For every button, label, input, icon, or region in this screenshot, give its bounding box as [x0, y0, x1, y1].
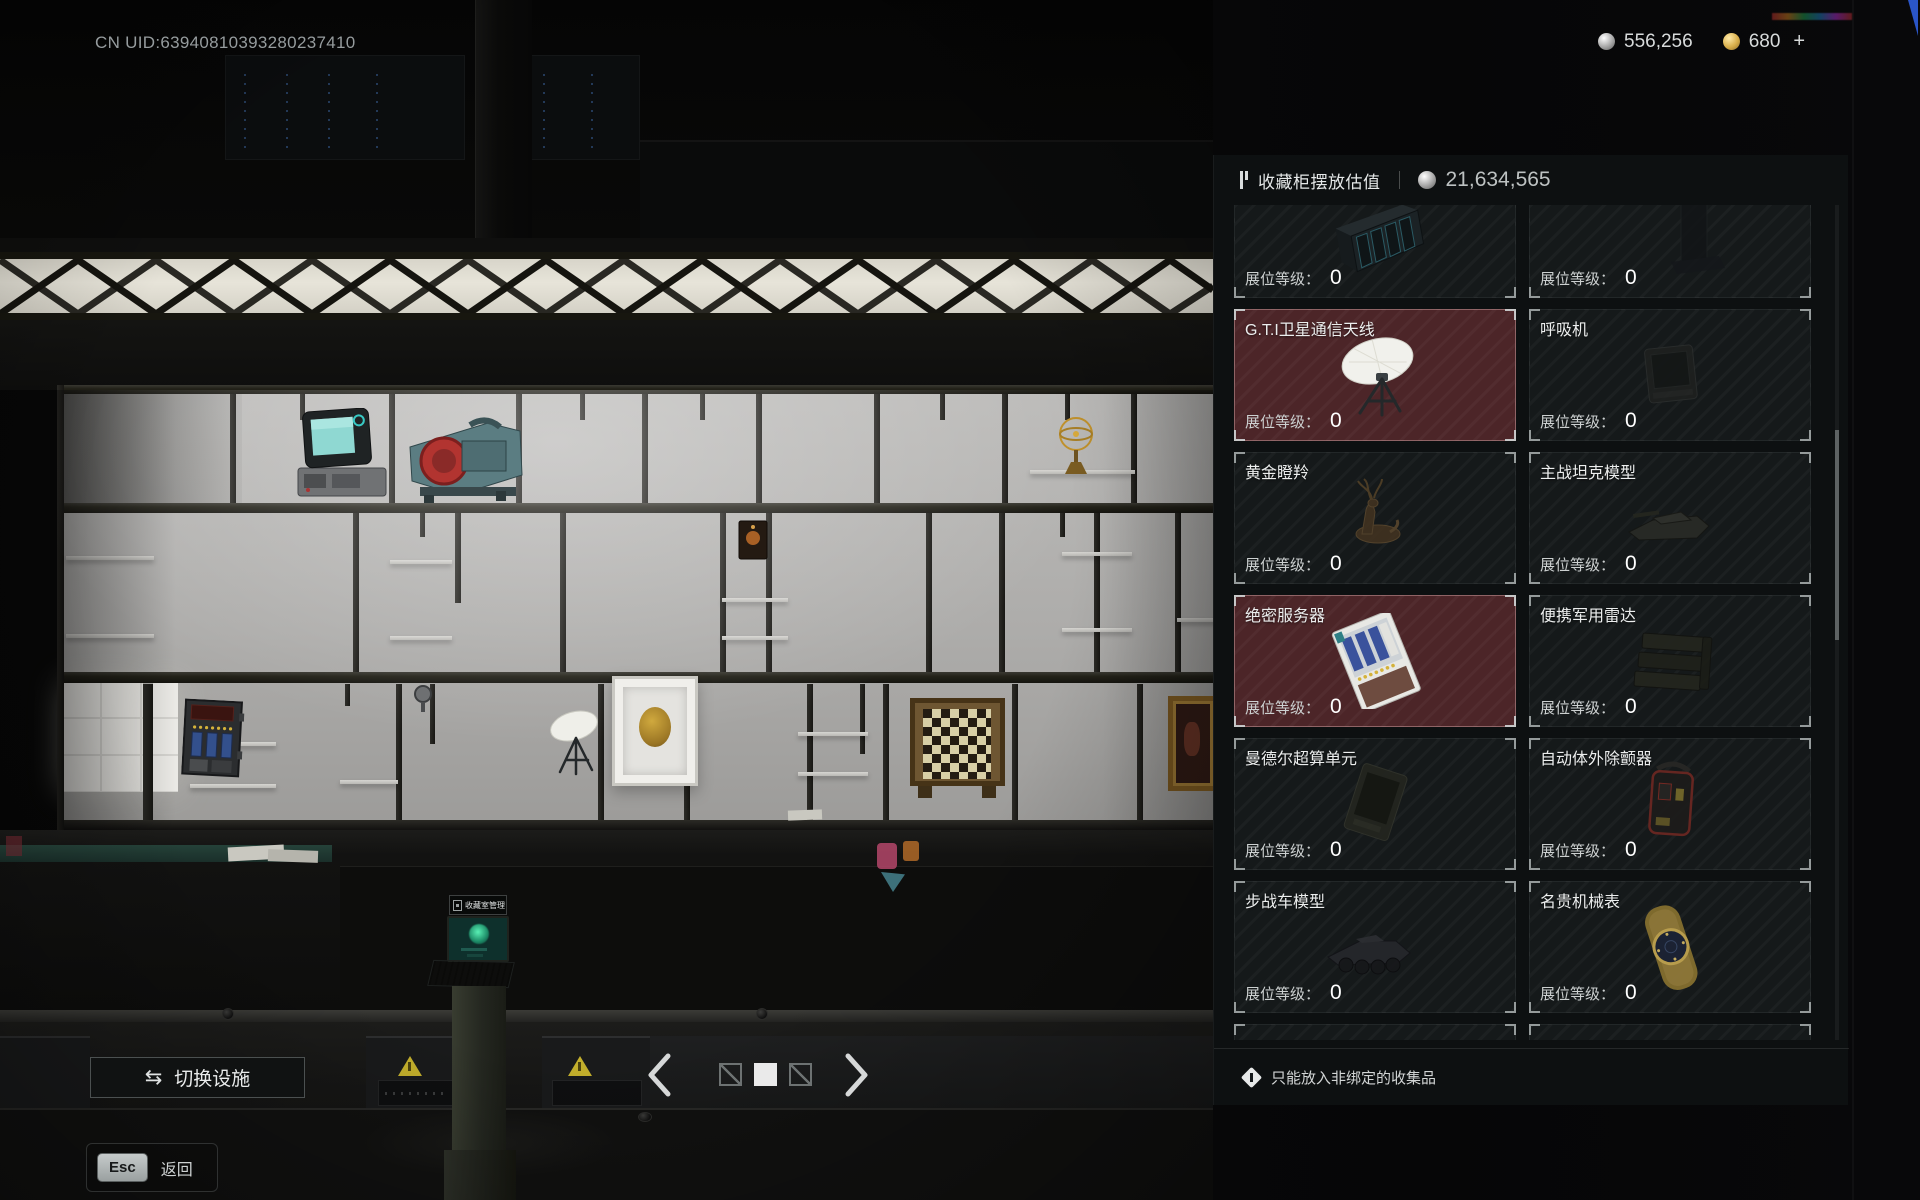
level-label: 展位等级：: [1540, 411, 1615, 432]
painting-figure: [1184, 722, 1200, 756]
collection-item-card[interactable]: 绝密服务器 展位等级： 0: [1234, 595, 1516, 727]
item-name: G.T.I卫星通信天线: [1245, 316, 1375, 340]
level-value: 0: [1330, 981, 1342, 1005]
item-level: 展位等级： 0: [1245, 695, 1342, 719]
scrollbar-thumb[interactable]: [1835, 430, 1839, 640]
rack-leds: [244, 68, 246, 148]
silver-coin-icon: [1598, 33, 1615, 50]
level-value: 0: [1625, 838, 1637, 862]
display-item-painting: [1168, 696, 1218, 791]
shelf-frame-bar: [700, 394, 705, 420]
chessboard-leg: [918, 786, 932, 798]
item-level: 展位等级： 0: [1245, 266, 1342, 290]
level-value: 0: [1625, 981, 1637, 1005]
gold-amount: 680: [1749, 31, 1781, 53]
collection-item-card[interactable]: 步战车模型 展位等级： 0: [1234, 881, 1516, 1013]
collection-item-card[interactable]: 曼德尔超算单元 展位等级： 0: [1234, 738, 1516, 870]
item-level: 展位等级： 0: [1245, 409, 1342, 433]
shelf-frame-bar: [874, 394, 880, 503]
item-level: 展位等级： 0: [1540, 981, 1637, 1005]
shelf-frame-bar: [807, 684, 813, 820]
collection-grid: 展位等级： 0 展位等级： 0: [1214, 205, 1849, 1040]
item-name: 名贵机械表: [1540, 888, 1620, 912]
item-level: 展位等级： 0: [1540, 552, 1637, 576]
floor-fitting: [222, 1008, 234, 1020]
item-level: 展位等级： 0: [1540, 266, 1637, 290]
server-rack-bg: [520, 55, 640, 160]
level-label: 展位等级：: [1540, 840, 1615, 861]
corner-bracket: [1800, 1024, 1811, 1035]
skylight-truss: [0, 252, 1213, 320]
sticker-pink: [877, 843, 897, 869]
shelf-frame-bar: [883, 684, 889, 820]
esc-key-badge[interactable]: Esc: [97, 1153, 148, 1182]
shelf-frame-bar: [57, 385, 64, 834]
item-name: 主战坦克模型: [1540, 459, 1636, 483]
shelf-frame-bar: [860, 684, 865, 754]
skylight: [0, 252, 1213, 320]
gold-medal: [639, 707, 671, 747]
panel-title: 收藏柜摆放估值: [1258, 168, 1381, 193]
level-label: 展位等级：: [1245, 554, 1320, 575]
panel-footer: 只能放入非绑定的收集品: [1214, 1048, 1849, 1105]
shelf-frame-bar: [1094, 513, 1100, 672]
floor-fitting: [638, 1112, 652, 1122]
watermark: [1772, 13, 1852, 20]
item-name: 便携军用雷达: [1540, 602, 1636, 626]
shelf-frame-bar: [420, 513, 425, 537]
rack-leds: [591, 68, 593, 148]
shelf-frame-bar: [1175, 513, 1181, 672]
page-indicator-3[interactable]: [789, 1063, 812, 1086]
switch-facility-button[interactable]: ⇆ 切换设施: [90, 1057, 305, 1098]
shelf-frame-bar: [455, 513, 461, 603]
next-page-button[interactable]: [838, 1051, 874, 1104]
chevron-right-icon: [848, 1056, 865, 1094]
kiosk-keyboard: [427, 960, 515, 988]
ceiling-beam: [475, 0, 532, 238]
lightbox-panel: [62, 682, 143, 792]
kiosk-tooltip: 收藏室管理: [449, 895, 507, 915]
rack-leds: [543, 68, 545, 148]
collection-item-card[interactable]: 自动体外除颤器 展位等级： 0: [1529, 738, 1811, 870]
collection-item-card[interactable]: 名贵机械表 展位等级： 0: [1529, 881, 1811, 1013]
level-value: 0: [1625, 695, 1637, 719]
level-label: 展位等级：: [1540, 554, 1615, 575]
gold-coin-icon: [1723, 33, 1740, 50]
shelf-frame-bar: [580, 394, 585, 420]
level-value: 0: [1330, 838, 1342, 862]
currency-bar: 556,256 680 +: [1598, 30, 1805, 53]
shelf-frame-bar: [1062, 628, 1132, 632]
collection-panel: 收藏柜摆放估值 21,634,565: [1213, 155, 1848, 1105]
item-name: 黄金瞪羚: [1245, 459, 1309, 483]
shelf-frame-bar: [722, 636, 788, 640]
warning-triangle-icon: [398, 1056, 422, 1076]
shelf-frame-bar: [926, 513, 932, 672]
collection-item-card[interactable]: [1234, 1024, 1516, 1040]
level-label: 展位等级：: [1245, 697, 1320, 718]
add-currency-button[interactable]: +: [1793, 30, 1805, 53]
display-item-valve: [410, 684, 436, 714]
machine-cabinet: [0, 1036, 90, 1108]
display-item-plaque: [738, 520, 768, 560]
display-item-terminal: [296, 408, 396, 503]
floor-step: [0, 1010, 1213, 1022]
item-name: 曼德尔超算单元: [1245, 745, 1357, 769]
shelf-frame-bar: [722, 598, 788, 602]
sticker-red: [6, 836, 22, 856]
sticker-orange: [903, 841, 919, 861]
level-label: 展位等级：: [1245, 268, 1320, 289]
machine-markings: [385, 1092, 445, 1095]
level-label: 展位等级：: [1245, 983, 1320, 1004]
shelf-frame-bar: [340, 780, 398, 784]
level-value: 0: [1330, 552, 1342, 576]
corner-bracket: [1234, 1024, 1245, 1035]
collection-item-card[interactable]: 便携军用雷达 展位等级： 0: [1529, 595, 1811, 727]
level-value: 0: [1330, 409, 1342, 433]
shelf-frame-bar: [396, 684, 402, 820]
panel-scrollbar[interactable]: [1835, 205, 1839, 1040]
item-level: 展位等级： 0: [1540, 838, 1637, 862]
collection-item-card[interactable]: 展位等级： 0: [1529, 205, 1811, 298]
logo-glow-icon: [469, 924, 489, 944]
shelf-frame-bar: [230, 394, 236, 503]
rack-leds: [286, 68, 288, 148]
panel-header: 收藏柜摆放估值 21,634,565: [1214, 155, 1849, 205]
game-screen: 收藏室管理 CN UID:63940810393280237410 556,25…: [0, 0, 1920, 1200]
shelf-frame-bar: [642, 394, 648, 503]
item-name: 自动体外除颤器: [1540, 745, 1652, 769]
shelf-frame-bar: [390, 636, 452, 640]
display-item-framed-medal: [612, 676, 698, 786]
warning-icon: [1241, 1066, 1262, 1087]
item-level: 展位等级： 0: [1540, 695, 1637, 719]
shelf-frame-bar: [190, 784, 276, 788]
currency-gold[interactable]: 680 +: [1723, 30, 1805, 53]
display-item-chessboard: [910, 698, 1005, 798]
chessboard-squares: [923, 709, 991, 779]
chevron-left-icon: [651, 1056, 668, 1094]
shelf-frame-bar: [720, 513, 726, 672]
shelf-frame-bar: [1131, 394, 1137, 503]
silver-amount: 556,256: [1624, 31, 1693, 53]
shelf-frame-bar: [798, 772, 868, 776]
level-value: 0: [1330, 695, 1342, 719]
shelf-frame-bar: [390, 560, 452, 564]
server-rack-bg: [225, 55, 465, 160]
level-label: 展位等级：: [1245, 840, 1320, 861]
level-label: 展位等级：: [1540, 983, 1615, 1004]
switch-facility-label: 切换设施: [174, 1064, 250, 1091]
screen-text-bar: [461, 948, 487, 951]
shelf-frame-bar: [143, 684, 153, 820]
shelf-frame-bar: [798, 732, 868, 736]
cabinet-icon: [453, 900, 462, 911]
shelf-frame-bar: [66, 556, 154, 560]
chessboard-frame: [910, 698, 1005, 786]
total-valuation: 21,634,565: [1446, 168, 1551, 192]
kiosk-stand: [452, 986, 506, 1154]
shelf-frame-bar: [353, 513, 359, 672]
kiosk-laptop-screen[interactable]: [447, 916, 509, 962]
paper: [268, 849, 318, 863]
level-label: 展位等级：: [1540, 268, 1615, 289]
wall-shadow: [57, 390, 242, 506]
floor-fitting: [756, 1008, 768, 1020]
collection-item-card[interactable]: 呼吸机 展位等级： 0: [1529, 309, 1811, 441]
painting-canvas: [1176, 704, 1210, 783]
rack-leds: [328, 68, 330, 148]
corner-bracket: [1505, 1024, 1516, 1035]
currency-silver: 556,256: [1598, 31, 1693, 53]
display-item-chainsaw: [400, 415, 540, 510]
page-indicator-2-active[interactable]: [754, 1063, 777, 1086]
kiosk-tooltip-label: 收藏室管理: [465, 900, 505, 911]
shelf-frame-bar: [1060, 513, 1065, 537]
collection-item-card[interactable]: G.T.I卫星通信天线 展位等级： 0: [1234, 309, 1516, 441]
shelf-frame-bar: [999, 513, 1005, 672]
display-item-wall-server: [181, 698, 245, 779]
header-marker-icon: [1240, 171, 1248, 189]
item-level: 展位等级： 0: [1245, 838, 1342, 862]
level-label: 展位等级：: [1540, 697, 1615, 718]
collection-item-card[interactable]: [1529, 1024, 1811, 1040]
shelf-frame-bar: [345, 684, 350, 706]
lightbox-panel: [153, 682, 178, 792]
skylight-frame: [0, 238, 1213, 252]
footer-note: 只能放入非绑定的收集品: [1271, 1067, 1436, 1088]
corner-bracket: [1529, 1024, 1540, 1035]
level-value: 0: [1625, 552, 1637, 576]
page-indicator-1[interactable]: [719, 1063, 742, 1086]
collection-item-card[interactable]: 主战坦克模型 展位等级： 0: [1529, 452, 1811, 584]
shelf-frame-bar: [1002, 394, 1008, 503]
corner-notification: [1908, 0, 1918, 36]
rack-leds: [376, 68, 378, 148]
shelf-frame-bar: [66, 634, 154, 638]
divider: [1399, 171, 1400, 189]
shelf-frame-bar: [560, 513, 566, 672]
display-item-armillary: [1048, 408, 1104, 478]
shelf-frame-bar: [1062, 552, 1132, 556]
collection-item-card[interactable]: 展位等级： 0: [1234, 205, 1516, 298]
shelf-frame-bar: [756, 394, 762, 503]
item-name: 呼吸机: [1540, 316, 1588, 340]
machine-cabinet: [542, 1036, 650, 1108]
screen-text-bar: [467, 954, 483, 957]
item-level: 展位等级： 0: [1245, 552, 1342, 576]
shelf-frame-bar: [1137, 684, 1143, 820]
upper-wall: [0, 320, 1213, 390]
wall-corner-highlight: [1852, 0, 1854, 1200]
level-value: 0: [1625, 409, 1637, 433]
paper: [788, 809, 822, 820]
shelf-frame-bar: [940, 394, 945, 420]
machine-slot: [552, 1080, 642, 1106]
item-name: 步战车模型: [1245, 888, 1325, 912]
warning-triangle-icon: [568, 1056, 592, 1076]
player-uid: CN UID:63940810393280237410: [95, 33, 355, 53]
ceiling-structure: [640, 140, 1213, 238]
kiosk-base: [444, 1150, 516, 1200]
collection-item-card[interactable]: 黄金瞪羚 展位等级： 0: [1234, 452, 1516, 584]
display-item-dish-stand: [540, 708, 610, 783]
shelf-frame-bar: [1012, 684, 1018, 820]
level-value: 0: [1330, 266, 1342, 290]
back-control[interactable]: Esc 返回: [86, 1143, 218, 1192]
level-label: 展位等级：: [1245, 411, 1320, 432]
item-name: 绝密服务器: [1245, 602, 1325, 626]
prev-page-button[interactable]: [642, 1051, 678, 1104]
chessboard-leg: [982, 786, 996, 798]
silver-coin-icon: [1418, 171, 1436, 189]
item-level: 展位等级： 0: [1540, 409, 1637, 433]
shelf-frame-bar: [57, 385, 1245, 394]
level-value: 0: [1625, 266, 1637, 290]
shelf-frame-bar: [57, 503, 1245, 513]
item-level: 展位等级： 0: [1245, 981, 1342, 1005]
swap-arrows-icon: ⇆: [145, 1067, 163, 1088]
back-label: 返回: [161, 1156, 193, 1180]
